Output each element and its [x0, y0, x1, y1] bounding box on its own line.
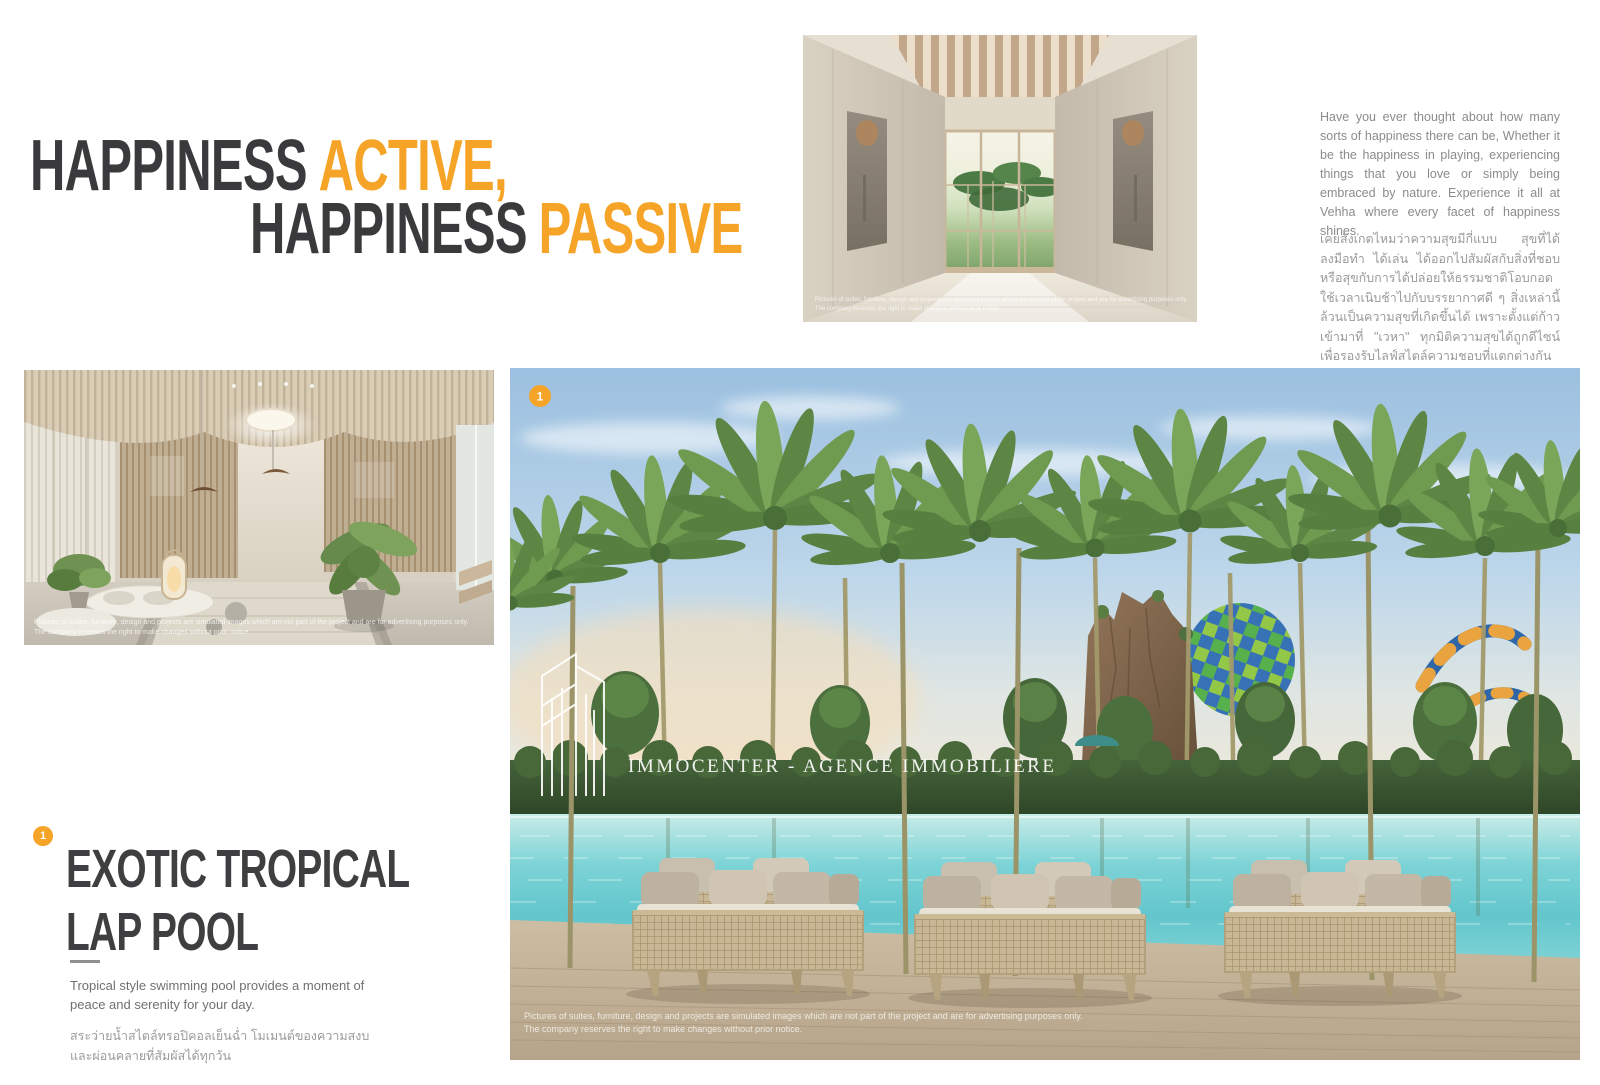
headline-word-passive: PASSIVE	[539, 189, 743, 269]
feature-description-english: Tropical style swimming pool provides a …	[70, 976, 370, 1014]
headline-word-happiness-2: HAPPINESS	[250, 189, 527, 269]
feature-title-line1: EXOTIC TROPICAL	[66, 838, 409, 901]
lobby-disclaimer-line1: Pictures of suites, furniture, design an…	[815, 297, 1188, 303]
pool-rendering-image: IMMOCENTER - AGENCE IMMOBILIERE 1 Pictur…	[510, 368, 1580, 1060]
feature-title-line2: LAP POOL	[66, 901, 409, 964]
lobby-rendering-image: Pictures of suites, furniture, design an…	[803, 35, 1197, 322]
intro-paragraph-thai: เคยสังเกตไหมว่าความสุขมีกี่แบบ สุขที่ได้…	[1320, 230, 1560, 386]
lounge-disclaimer-line2: The company reserves the right to make c…	[34, 629, 250, 636]
brochure-page: HAPPINESSACTIVE, HAPPINESSPASSIVE Have y…	[0, 0, 1600, 1085]
lobby-glass-wall	[945, 131, 1061, 273]
intro-paragraph-english: Have you ever thought about how many sor…	[1320, 108, 1560, 241]
feature-divider	[70, 960, 100, 963]
feature-thai-line2: และผ่อนคลายที่สัมผัสได้ทุกวัน	[70, 1046, 369, 1066]
feature-title: EXOTIC TROPICAL LAP POOL	[66, 838, 543, 964]
feature-thai-line1: สระว่ายน้ำสไตล์ทรอปิคอลเย็นฉ่ำ โมเมนต์ขอ…	[70, 1026, 369, 1046]
lounge-rendering-image: Pictures of suites, furniture, design an…	[24, 370, 494, 645]
lobby-disclaimer-line2: The company reserves the right to make c…	[815, 306, 1001, 312]
lounge-skylight	[246, 409, 296, 431]
watermark-text: IMMOCENTER - AGENCE IMMOBILIERE	[628, 756, 1056, 777]
lounge-glass-right	[456, 425, 494, 604]
svg-text:1: 1	[537, 390, 544, 404]
lobby-back-wall-strip	[945, 97, 1055, 131]
lantern-lamp	[162, 550, 186, 599]
pool-disclaimer-line2: The company reserves the right to make c…	[524, 1024, 802, 1034]
pool-number-badge: 1	[529, 385, 551, 407]
feature-number-badge: 1	[33, 826, 53, 846]
lounge-corridor	[238, 440, 324, 580]
lounge-disclaimer-line1: Pictures of suites, furniture, design an…	[34, 619, 469, 626]
pool-disclaimer-line1: Pictures of suites, furniture, design an…	[524, 1011, 1083, 1021]
feature-description-thai: สระว่ายน้ำสไตล์ทรอปิคอลเย็นฉ่ำ โมเมนต์ขอ…	[70, 1026, 369, 1066]
